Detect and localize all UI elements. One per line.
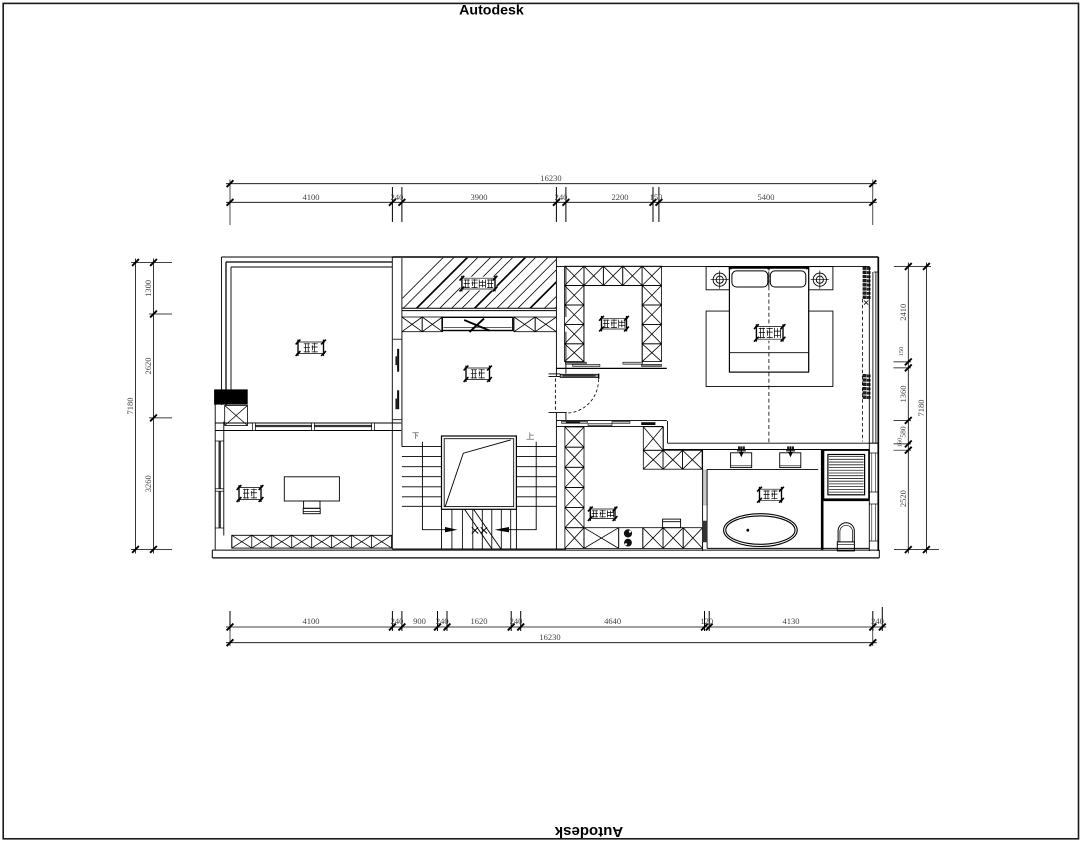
svg-text:1300: 1300 <box>143 280 153 297</box>
svg-text:4640: 4640 <box>604 616 621 626</box>
svg-text:2410: 2410 <box>898 304 908 321</box>
svg-text:160: 160 <box>897 438 904 448</box>
svg-text:4130: 4130 <box>783 616 800 626</box>
svg-text:3260: 3260 <box>143 475 153 492</box>
svg-text:240: 240 <box>871 616 884 626</box>
svg-text:240: 240 <box>391 192 404 202</box>
svg-text:4100: 4100 <box>303 192 320 202</box>
svg-text:580: 580 <box>899 426 908 438</box>
svg-text:2200: 2200 <box>612 192 629 202</box>
svg-text:2520: 2520 <box>898 490 908 507</box>
svg-text:4100: 4100 <box>303 616 320 626</box>
svg-text:150: 150 <box>650 192 663 202</box>
svg-text:16230: 16230 <box>540 173 561 183</box>
svg-text:2620: 2620 <box>143 358 153 375</box>
svg-text:1360: 1360 <box>898 386 908 403</box>
svg-text:3900: 3900 <box>471 192 488 202</box>
svg-text:900: 900 <box>413 616 426 626</box>
svg-text:240: 240 <box>391 616 404 626</box>
svg-text:240: 240 <box>510 616 523 626</box>
svg-text:120: 120 <box>700 616 713 626</box>
svg-text:150: 150 <box>898 347 905 357</box>
svg-text:Autodesk: Autodesk <box>459 2 524 18</box>
svg-text:1620: 1620 <box>471 616 488 626</box>
svg-text:5400: 5400 <box>758 192 775 202</box>
svg-text:16230: 16230 <box>539 632 560 642</box>
svg-text:240: 240 <box>436 616 449 626</box>
svg-text:7180: 7180 <box>125 398 135 415</box>
svg-text:240: 240 <box>555 192 568 202</box>
svg-text:7180: 7180 <box>916 400 926 417</box>
svg-text:Autodesk: Autodesk <box>554 823 623 840</box>
